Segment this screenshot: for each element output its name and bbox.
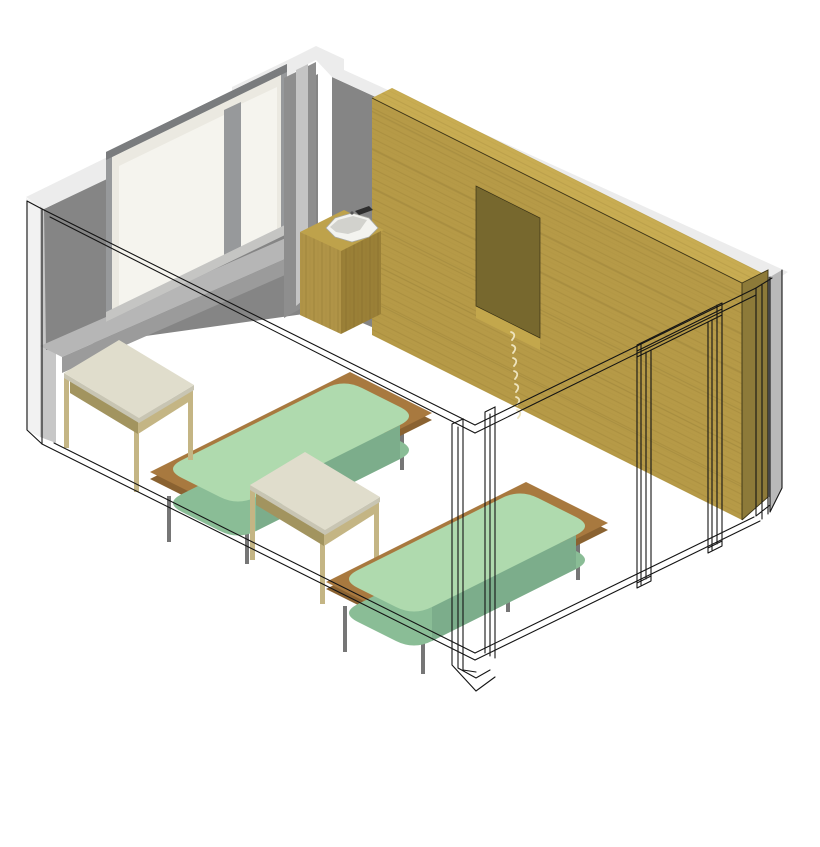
left-wall-outer-white	[26, 198, 40, 437]
room-scene-svg	[0, 0, 820, 847]
table-leg	[64, 376, 69, 448]
bed-leg	[167, 496, 171, 542]
wardrobe	[372, 88, 768, 520]
right-wall-outer-strip	[770, 270, 782, 513]
window-pane-narrow	[241, 87, 277, 247]
faucet-handle-icon	[350, 211, 353, 214]
wardrobe-front-planks	[372, 98, 742, 520]
window-mullion	[224, 102, 241, 256]
room-3d-view	[0, 0, 820, 847]
wardrobe-side	[742, 270, 768, 520]
bed-leg	[343, 606, 347, 652]
